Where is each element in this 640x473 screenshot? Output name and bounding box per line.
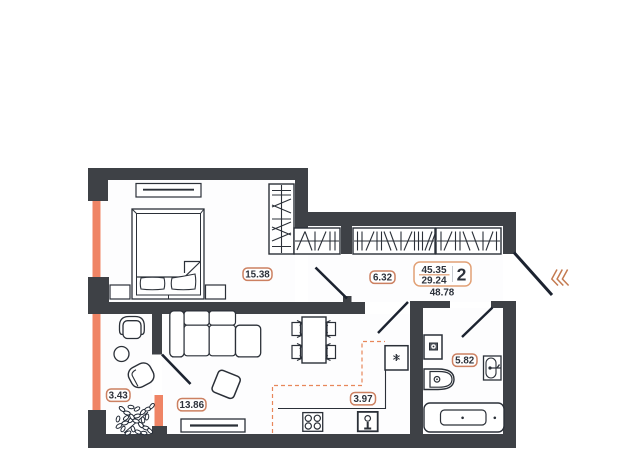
svg-text:3.97: 3.97 bbox=[353, 394, 373, 405]
svg-text:48.78: 48.78 bbox=[430, 288, 455, 299]
svg-text:13.86: 13.86 bbox=[180, 400, 205, 411]
svg-text:15.38: 15.38 bbox=[245, 270, 270, 281]
svg-text:6.32: 6.32 bbox=[373, 273, 393, 284]
svg-text:29.24: 29.24 bbox=[421, 276, 446, 287]
svg-text:2: 2 bbox=[457, 265, 467, 285]
svg-text:5.82: 5.82 bbox=[455, 356, 475, 367]
svg-text:3.43: 3.43 bbox=[109, 391, 129, 402]
